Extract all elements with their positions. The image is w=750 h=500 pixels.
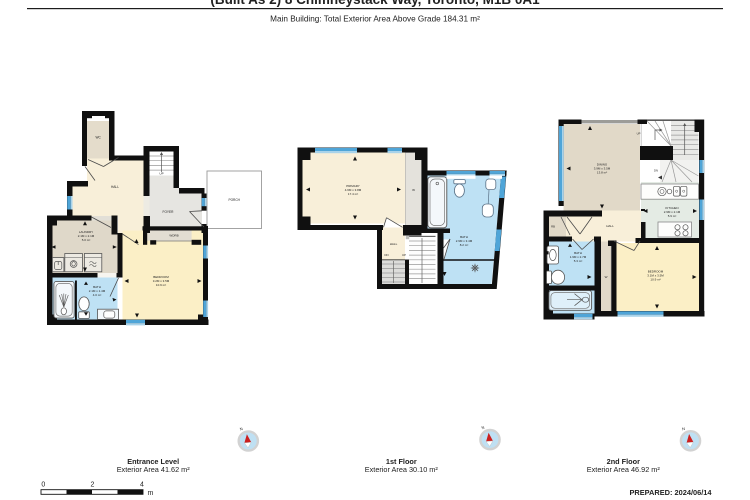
svg-text:UP: UP: [159, 172, 163, 176]
svg-text:WDRB: WDRB: [169, 234, 178, 238]
svg-text:m: m: [148, 490, 154, 497]
svg-text:FOYER: FOYER: [163, 210, 175, 214]
svg-text:0: 0: [41, 482, 45, 489]
svg-text:UP: UP: [637, 132, 641, 136]
svg-text:4: 4: [140, 482, 144, 489]
svg-text:WC: WC: [96, 136, 102, 140]
svg-text:Main Building: Total Exterior: Main Building: Total Exterior Area Above…: [270, 15, 480, 24]
svg-text:PREPARED: 2024/06/14: PREPARED: 2024/06/14: [629, 488, 712, 497]
svg-text:8.2 m²: 8.2 m²: [460, 243, 469, 247]
svg-text:HALL: HALL: [390, 242, 398, 246]
svg-text:(Built As 2) 8 Chimneystack Wa: (Built As 2) 8 Chimneystack Way, Toronto…: [210, 0, 540, 7]
svg-text:17.4 m²: 17.4 m²: [348, 192, 358, 196]
svg-text:UP: UP: [402, 253, 406, 257]
svg-text:2: 2: [91, 482, 95, 489]
svg-text:5.3 m²: 5.3 m²: [574, 259, 583, 263]
svg-text:Exterior Area 46.92 m²: Exterior Area 46.92 m²: [587, 465, 661, 474]
svg-text:W: W: [605, 275, 608, 279]
svg-text:DN: DN: [654, 169, 658, 173]
svg-text:W: W: [412, 188, 415, 192]
svg-text:PORCH: PORCH: [228, 198, 240, 202]
svg-text:5.9 m²: 5.9 m²: [668, 214, 677, 218]
svg-text:10.9 m²: 10.9 m²: [156, 283, 166, 287]
svg-text:DN: DN: [384, 253, 388, 257]
svg-text:5.0 m²: 5.0 m²: [82, 238, 91, 242]
svg-text:RB: RB: [551, 225, 555, 229]
svg-text:Exterior Area 30.10 m²: Exterior Area 30.10 m²: [365, 465, 439, 474]
svg-text:4.0 m²: 4.0 m²: [93, 293, 102, 297]
svg-text:10.9 m²: 10.9 m²: [650, 278, 660, 282]
svg-text:HALL: HALL: [606, 224, 614, 228]
svg-text:Exterior Area 41.62 m²: Exterior Area 41.62 m²: [117, 465, 191, 474]
svg-text:HALL: HALL: [111, 185, 119, 189]
svg-text:13.8 m²: 13.8 m²: [597, 171, 607, 175]
